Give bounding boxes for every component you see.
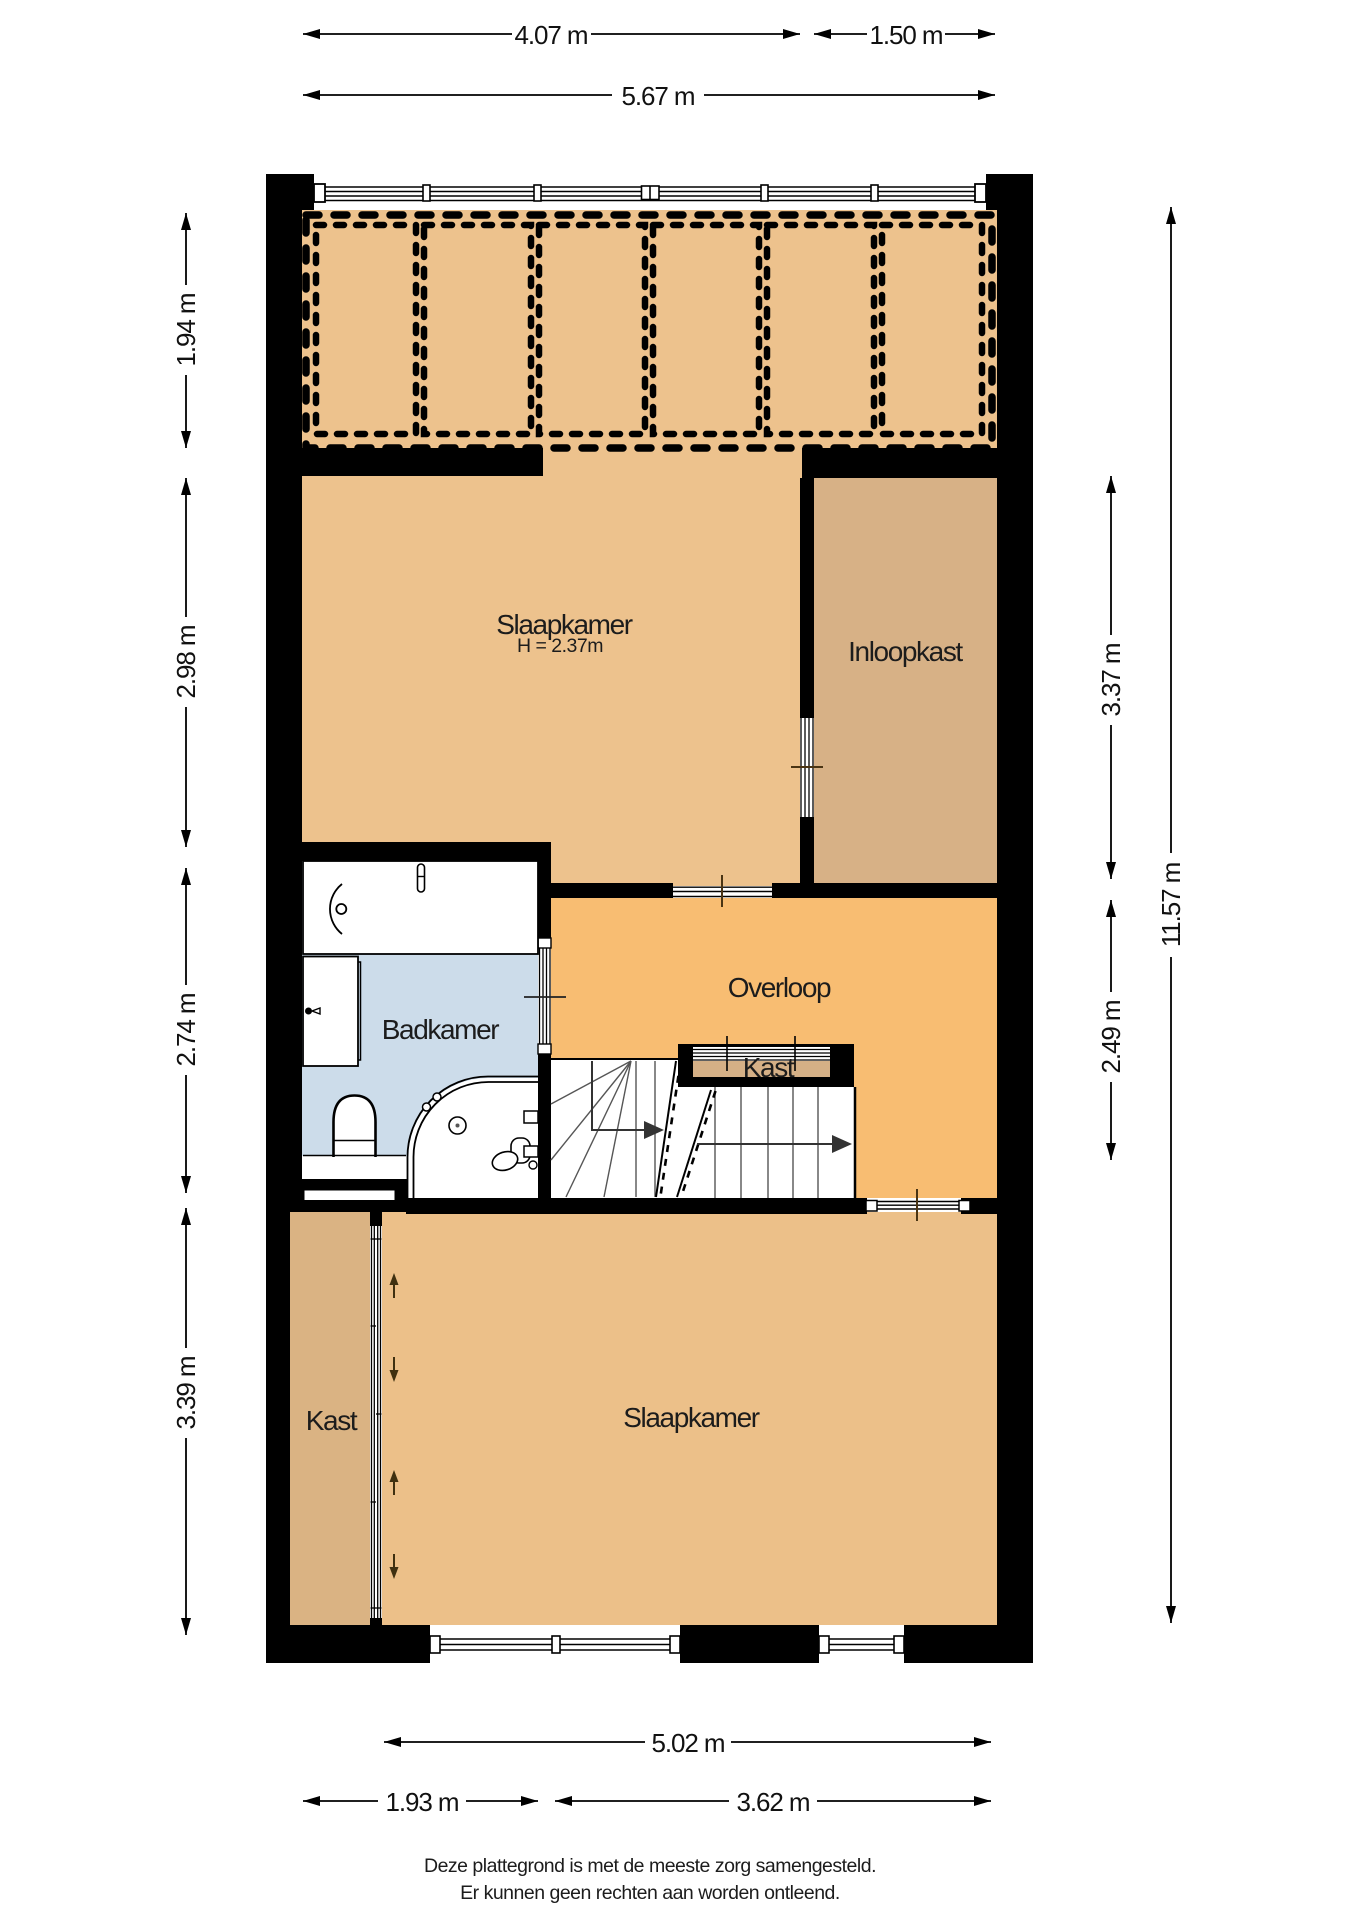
svg-text:H = 2.37m: H = 2.37m xyxy=(517,635,603,657)
svg-text:5.02 m: 5.02 m xyxy=(652,1728,725,1758)
svg-text:Deze plattegrond is met de mee: Deze plattegrond is met de meeste zorg s… xyxy=(424,1855,876,1877)
svg-text:Inloopkast: Inloopkast xyxy=(848,636,963,667)
svg-text:2.74 m: 2.74 m xyxy=(171,994,201,1067)
svg-text:5.67 m: 5.67 m xyxy=(622,81,695,111)
svg-text:3.62 m: 3.62 m xyxy=(737,1787,810,1817)
svg-text:Er kunnen geen rechten aan wor: Er kunnen geen rechten aan worden ontlee… xyxy=(460,1882,840,1904)
svg-text:3.37 m: 3.37 m xyxy=(1096,644,1126,717)
svg-text:11.57 m: 11.57 m xyxy=(1156,863,1186,947)
svg-text:2.98 m: 2.98 m xyxy=(171,626,201,699)
svg-text:3.39 m: 3.39 m xyxy=(171,1357,201,1430)
svg-text:1.50 m: 1.50 m xyxy=(870,20,943,50)
svg-text:1.93 m: 1.93 m xyxy=(386,1787,459,1817)
svg-text:Slaapkamer: Slaapkamer xyxy=(623,1402,759,1433)
svg-text:1.94 m: 1.94 m xyxy=(171,294,201,367)
svg-text:Kast: Kast xyxy=(743,1052,795,1083)
svg-text:Badkamer: Badkamer xyxy=(382,1014,499,1045)
svg-text:Overloop: Overloop xyxy=(728,972,831,1003)
svg-text:4.07 m: 4.07 m xyxy=(515,20,588,50)
svg-text:Kast: Kast xyxy=(306,1405,358,1436)
svg-text:2.49 m: 2.49 m xyxy=(1096,1001,1126,1074)
